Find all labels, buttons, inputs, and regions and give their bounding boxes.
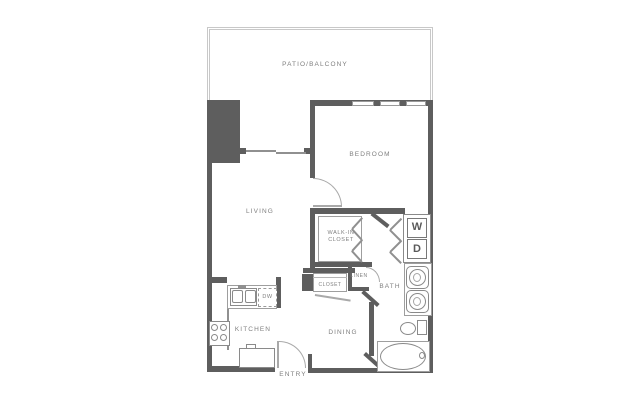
- toilet-bowl: [400, 322, 416, 335]
- room-label-living: LIVING: [220, 208, 300, 217]
- room-label-linen: LINEN: [349, 273, 369, 280]
- stove-burner: [211, 334, 218, 341]
- wall-diagonal: [371, 212, 390, 228]
- bathroom-sink-drain: [413, 273, 421, 282]
- room-label-dining: DINING: [313, 329, 373, 338]
- window: [380, 101, 400, 106]
- closet-door-leaf: [315, 294, 351, 301]
- kitchen-sink-basin: [245, 290, 256, 303]
- wall-segment: [348, 287, 369, 291]
- bifold-door: [389, 251, 401, 263]
- wall-segment: [308, 354, 312, 368]
- toilet-tank: [417, 320, 427, 335]
- closet-rod: [313, 277, 347, 278]
- wall-segment: [310, 208, 405, 214]
- wall-segment: [310, 262, 372, 267]
- sliding-door: [246, 150, 276, 152]
- counter-fixture: [246, 344, 256, 349]
- room-label-patio: PATIO/BALCONY: [247, 61, 383, 70]
- bedroom-door-arc: [313, 178, 342, 207]
- window: [352, 101, 374, 106]
- window: [406, 101, 426, 106]
- room-label-bedroom: BEDROOM: [330, 151, 410, 160]
- sliding-door-cap: [238, 148, 246, 154]
- washer-label: W: [407, 221, 427, 233]
- bifold-door: [389, 240, 401, 252]
- room-label-entry: ENTRY: [273, 371, 313, 380]
- wall-segment: [310, 208, 315, 268]
- bedroom-door-leaf: [313, 205, 342, 207]
- kitchen-sink-basin: [232, 290, 243, 303]
- dishwasher-label: DW: [258, 294, 277, 301]
- room-label-kitchen: KITCHEN: [223, 326, 283, 335]
- bathroom-sink-drain: [413, 297, 421, 306]
- counter-peninsula: [239, 348, 275, 368]
- wall-segment: [310, 100, 315, 178]
- floorplan-canvas: PATIO/BALCONY WALK-IN CLOSET W D LINEN: [0, 0, 639, 401]
- kitchen-faucet: [238, 285, 246, 288]
- stove-burner: [211, 324, 218, 331]
- wall-segment: [207, 277, 227, 283]
- room-label-closet: CLOSET: [312, 282, 348, 289]
- entry-door-arc: [279, 341, 306, 368]
- stove-burner: [220, 334, 227, 341]
- bifold-door: [389, 218, 401, 230]
- dryer-label: D: [407, 243, 427, 255]
- tub-faucet: [419, 352, 425, 359]
- sliding-door: [276, 152, 306, 154]
